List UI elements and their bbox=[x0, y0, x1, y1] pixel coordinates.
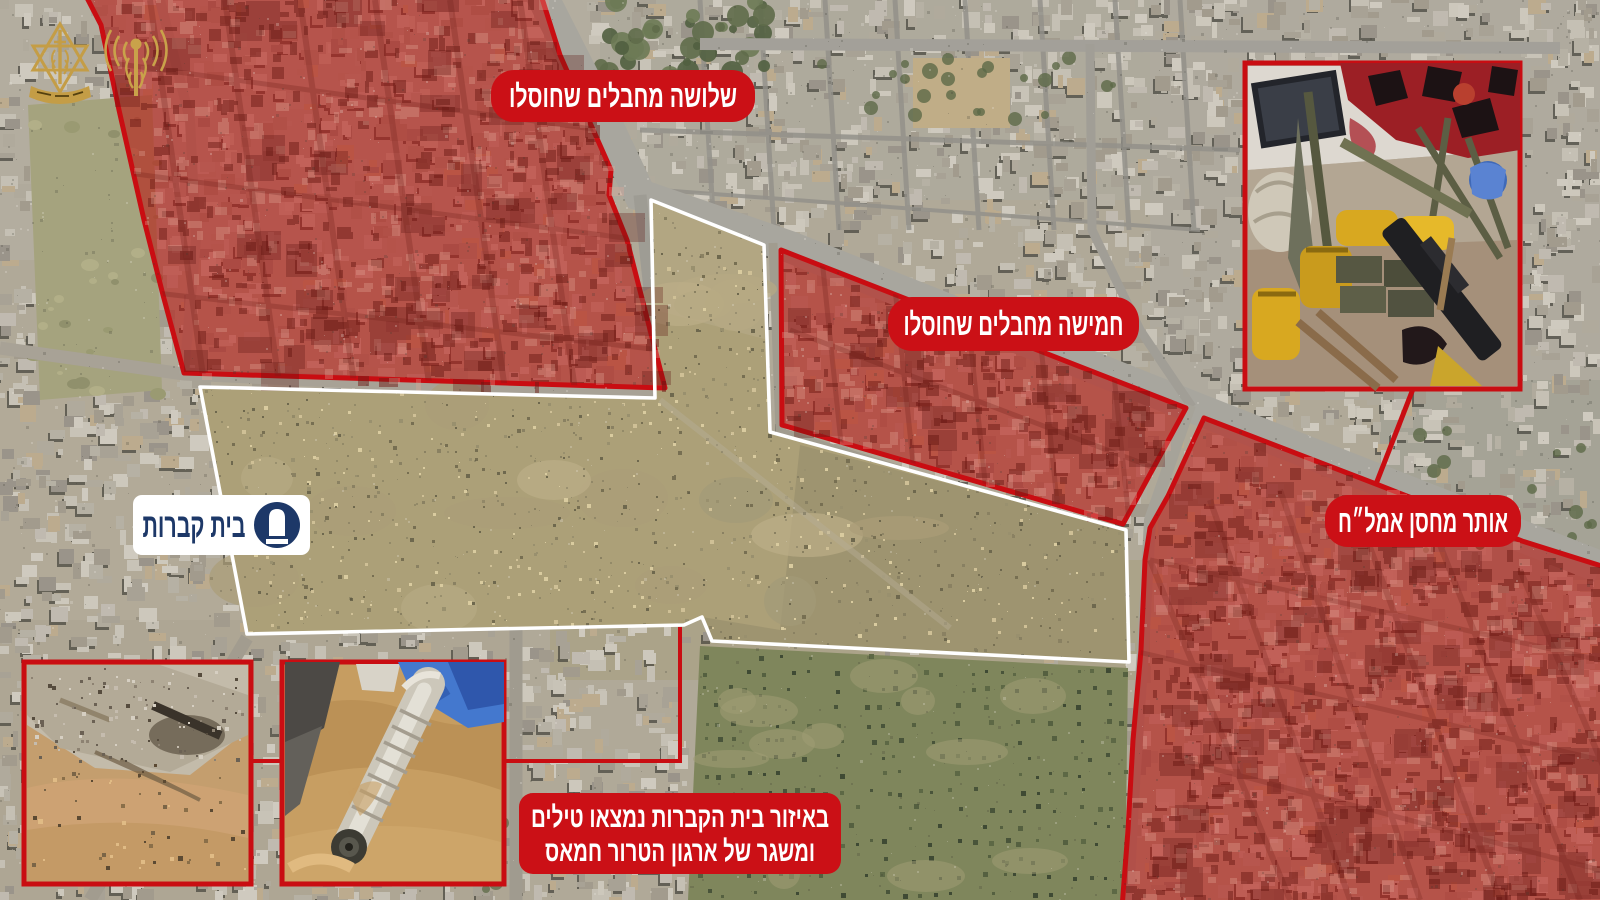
svg-text:בית קברות: בית קברות bbox=[143, 507, 246, 545]
svg-text:באיזור בית הקברות נמצאו טילים: באיזור בית הקברות נמצאו טילים bbox=[531, 802, 829, 834]
svg-text:חמישה מחבלים שחוסלו: חמישה מחבלים שחוסלו bbox=[904, 307, 1124, 342]
svg-text:שלושה מחבלים שחוסלו: שלושה מחבלים שחוסלו bbox=[509, 79, 737, 114]
svg-text:אותר מחסן אמל״ח: אותר מחסן אמל״ח bbox=[1338, 504, 1508, 539]
svg-text:ומשגר של ארגון הטרור חמאס: ומשגר של ארגון הטרור חמאס bbox=[545, 836, 815, 868]
